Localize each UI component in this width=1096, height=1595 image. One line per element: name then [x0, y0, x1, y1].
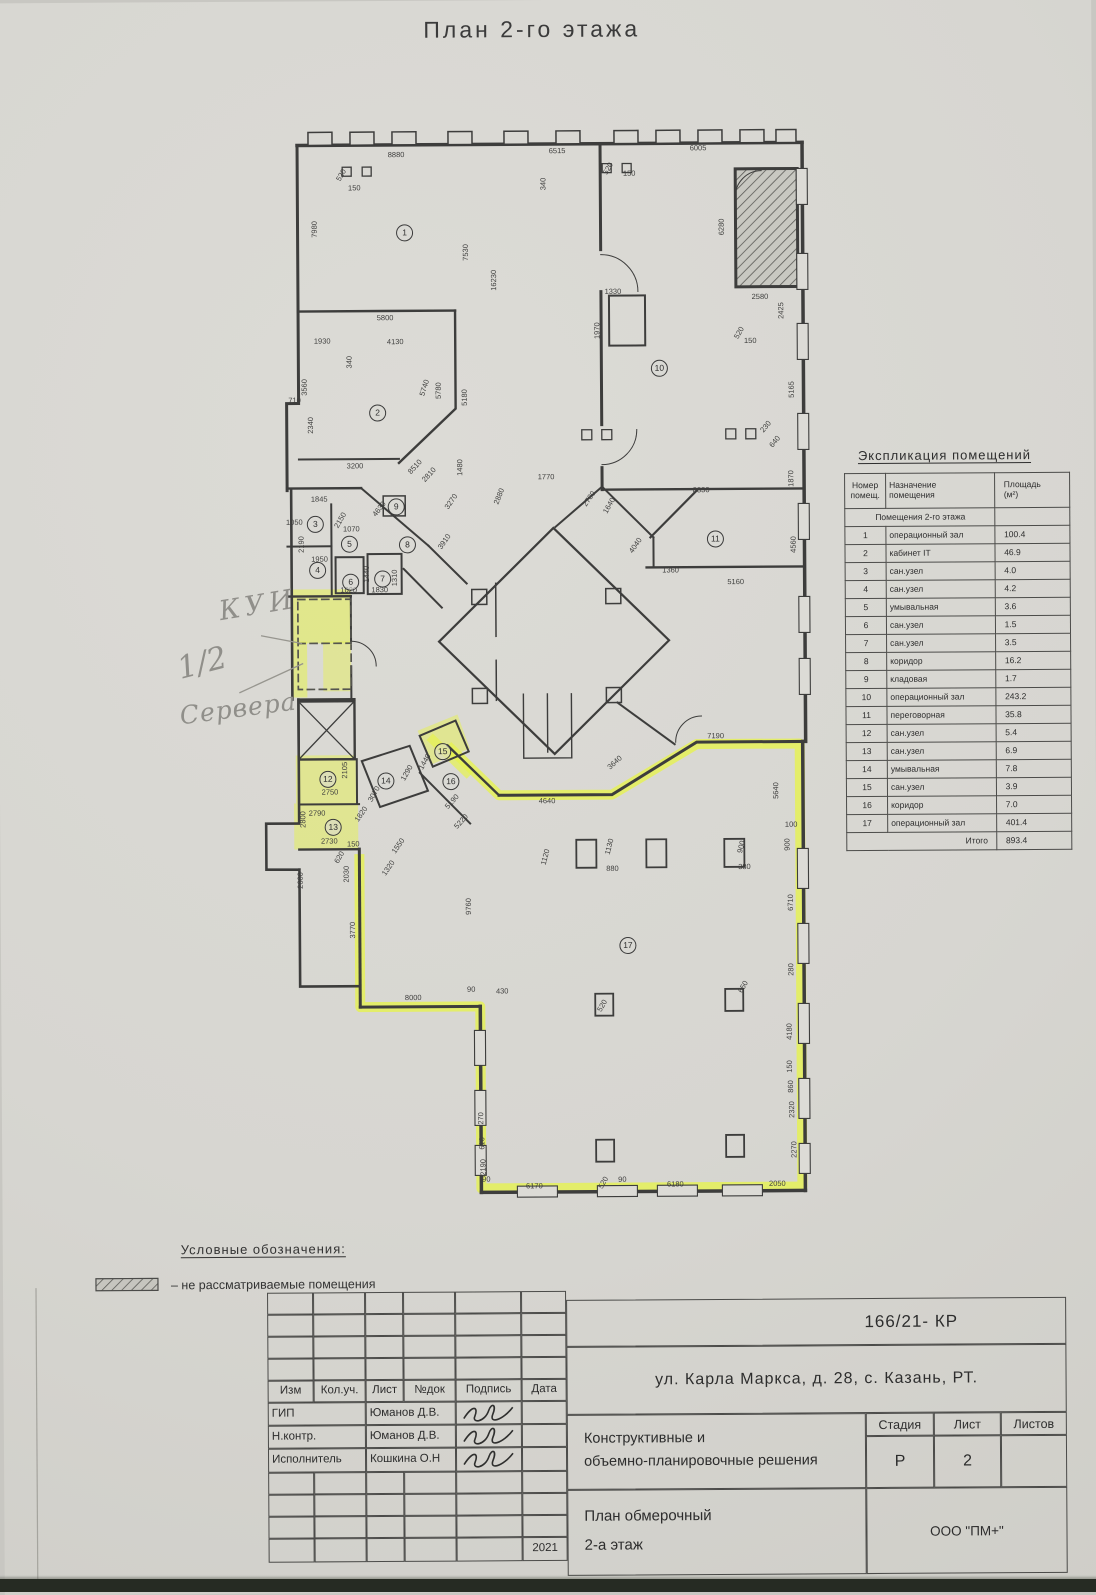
titleblock-empty-cell [367, 1538, 405, 1562]
room-number-marker: 5 [341, 536, 358, 553]
room-number-marker: 13 [325, 819, 342, 836]
room-number-marker: 7 [374, 570, 391, 587]
titleblock-empty-cell [455, 1335, 521, 1357]
dimension-label: 90 [467, 986, 475, 994]
table-row: 16коридор7.0 [847, 795, 1072, 814]
titleblock-empty-cell [268, 1494, 314, 1516]
dimension-label: 2425 [777, 302, 785, 319]
titleblock-empty-cell [521, 1335, 566, 1357]
table-row: 11переговорная35.8 [846, 705, 1071, 724]
titleblock-empty-cell [267, 1336, 313, 1358]
table-row: 1операционный зал100.4 [845, 525, 1070, 544]
room-number-marker: 11 [707, 530, 724, 547]
titleblock-empty-cell [404, 1472, 456, 1494]
titleblock-empty-cell [522, 1471, 567, 1493]
total-value: 893.4 [996, 831, 1071, 849]
dimension-label: 9760 [465, 898, 473, 915]
titleblock-cell: Юманов Д.В. [366, 1402, 456, 1426]
titleblock-cell: Лист [366, 1380, 404, 1402]
dimension-label: 4130 [387, 338, 404, 346]
dimension-label: 6005 [690, 144, 707, 152]
dimension-label: 2790 [309, 810, 326, 818]
titleblock-empty-cell [403, 1314, 455, 1336]
dimension-label: 5160 [727, 578, 744, 586]
table-row: 14умывальная7.8 [846, 759, 1071, 778]
dimension-label: 5780 [435, 382, 443, 399]
dimension-label: 2320 [788, 1101, 796, 1118]
titleblock-empty-cell [313, 1336, 365, 1358]
titleblock-empty-cell [267, 1314, 313, 1336]
titleblock-cell: Кошкина О.Н [366, 1448, 456, 1473]
titleblock-empty-cell [365, 1314, 403, 1336]
table-row: 7сан.узел3.5 [846, 633, 1071, 652]
titleblock-left-grid: ИзмКол.уч.Лист№докПодписьДатаГИПЮманов Д… [267, 1291, 569, 1564]
drawing-name: План обмерочный 2-а этаж [567, 1488, 867, 1576]
dimension-label: 7190 [707, 732, 724, 740]
titleblock-empty-cell [521, 1357, 566, 1379]
titleblock-empty-cell [268, 1516, 314, 1538]
dimension-label: 150 [786, 1060, 794, 1073]
titleblock-empty-cell [365, 1358, 403, 1380]
titleblock-cell: ГИП [268, 1402, 366, 1426]
titleblock-empty-cell [522, 1424, 567, 1447]
dimension-label: 4640 [539, 797, 556, 805]
dimension-label: 3560 [301, 379, 309, 396]
table-row: 15сан.узел3.9 [846, 777, 1071, 796]
titleblock-empty-cell [403, 1292, 455, 1314]
room-number-marker: 10 [651, 360, 668, 377]
company-name: ООО "ПМ+" [866, 1487, 1068, 1574]
dimension-label: 2050 [769, 1180, 786, 1188]
room-number-marker: 14 [377, 772, 394, 789]
dimension-label: 2580 [752, 293, 769, 301]
table-row: 8коридор16.2 [846, 651, 1071, 670]
titleblock-empty-cell [267, 1358, 313, 1380]
explication-body: Помещения 2-го этажа 1операционный зал10… [845, 507, 1072, 832]
titleblock-empty-cell [365, 1336, 403, 1358]
room-number-marker: 9 [388, 498, 405, 515]
signature-squiggle [460, 1426, 518, 1446]
dimension-label: 2105 [341, 762, 349, 779]
dimension-label: 340 [346, 356, 354, 369]
window-openings [469, 168, 813, 1197]
dimension-label: 2190 [479, 1159, 487, 1176]
dimension-label: 6180 [667, 1180, 684, 1188]
titleblock-cell: Исполнитель [268, 1448, 366, 1473]
dimension-label: 5180 [461, 389, 469, 406]
dimension-label: 8880 [388, 151, 405, 159]
dimension-label: 5640 [772, 782, 780, 799]
table-row: 17операционный зал401.4 [847, 813, 1072, 832]
dimension-label: 8000 [405, 994, 422, 1002]
titleblock-empty-cell [313, 1292, 365, 1314]
dimension-label: 4560 [790, 536, 798, 553]
dimension-label: 6170 [526, 1182, 543, 1190]
dimension-label: 3770 [349, 922, 357, 939]
titleblock-cell: Кол.уч. [314, 1380, 366, 1402]
dimension-label: 150 [744, 337, 757, 345]
dimension-label: 7530 [462, 244, 470, 261]
project-address: ул. Карла Маркса, д. 28, с. Казань, РТ. [566, 1344, 1066, 1415]
dimension-label: 2030 [343, 866, 351, 883]
dimension-label: 2270 [790, 1141, 798, 1158]
dimension-label: 2730 [321, 838, 338, 846]
dimension-label: 900 [784, 838, 792, 851]
titleblock-empty-cell [403, 1358, 455, 1380]
titleblock-empty-cell [314, 1472, 366, 1494]
titleblock-empty-cell [522, 1401, 567, 1424]
titleblock-empty-cell [455, 1313, 521, 1335]
room-number-marker: 3 [307, 516, 324, 533]
table-row: 6сан.узел1.5 [845, 615, 1070, 634]
titleblock-empty-cell [313, 1358, 365, 1380]
dimension-label: 1070 [343, 525, 360, 533]
table-row: 12сан.узел5.4 [846, 723, 1071, 742]
table-row: 5умывальная3.6 [845, 597, 1070, 616]
table-row: 13сан.узел6.9 [846, 741, 1071, 760]
dimension-label: 6515 [549, 147, 566, 155]
room-number-marker: 6 [342, 574, 359, 591]
dimension-label: 2340 [307, 417, 315, 434]
dimension-label: 880 [606, 865, 619, 873]
titleblock-empty-cell [404, 1494, 456, 1516]
titleblock-empty-cell [456, 1447, 522, 1471]
dimension-label: 1770 [538, 473, 555, 481]
titleblock-cell: Юманов Д.В. [366, 1425, 456, 1449]
titleblock-empty-cell [521, 1313, 566, 1335]
dimension-label: 1970 [593, 322, 601, 339]
titleblock-empty-cell [365, 1292, 403, 1314]
stage-label: Стадия [866, 1413, 934, 1436]
dimension-label: 5165 [788, 381, 796, 398]
sheet-frame-line [36, 1288, 38, 1581]
section-title: Конструктивные и объемно-планировочные р… [567, 1413, 866, 1490]
signature-squiggle [460, 1449, 518, 1469]
table-row: 4сан.узел4.2 [845, 579, 1070, 598]
dimension-label: 1845 [311, 496, 328, 504]
titleblock-cell: 2021 [523, 1537, 568, 1561]
legend-heading: Условные обозначения: [181, 1241, 346, 1257]
total-label: Итого [847, 832, 997, 851]
dimension-label: 1310 [391, 570, 399, 587]
dimension-label: 340 [539, 178, 547, 191]
scan-edge-band [0, 1579, 1096, 1592]
dimension-label: 5800 [377, 314, 394, 322]
dimension-label: 710 [288, 397, 301, 405]
titleblock-empty-cell [314, 1516, 366, 1538]
dimension-label: 2600 [297, 872, 305, 889]
stage-value: Р [866, 1436, 934, 1488]
room-number-marker: 2 [369, 404, 386, 421]
dimension-label: 150 [348, 184, 361, 192]
dimension-label: 610 [478, 1137, 486, 1150]
explication-panel: Экспликация помещений Номерпомещ. Назнач… [844, 447, 1072, 851]
explication-table: Номерпомещ. Назначениепомещения Площадь(… [844, 472, 1072, 851]
scanned-sheet: План 2-го этажа [0, 0, 1096, 1595]
document-code: 166/21- КР [566, 1297, 1066, 1347]
dimension-label: 100 [785, 821, 798, 829]
dimension-label: 270 [477, 1112, 485, 1125]
table-row: 9кладовая1.7 [846, 669, 1071, 688]
titleblock-empty-cell [268, 1472, 314, 1494]
dimension-label: 2800 [299, 811, 307, 828]
table-row: 2кабинет IT46.9 [845, 543, 1070, 562]
highlighter-marks [293, 586, 803, 1189]
dimension-label: 1480 [456, 459, 464, 476]
titleblock-empty-cell [522, 1447, 567, 1471]
titleblock-empty-cell [456, 1515, 522, 1537]
titleblock-cell: Н.контр. [268, 1425, 366, 1449]
table-row: 10операционный зал243.2 [846, 687, 1071, 706]
room-number-marker: 4 [309, 562, 326, 579]
titleblock-empty-cell [366, 1516, 404, 1538]
dimension-label: 150 [623, 170, 636, 178]
dimension-label: 2190 [298, 536, 306, 553]
titleblock-empty-cell [315, 1538, 367, 1562]
dimension-label: 1330 [605, 288, 622, 296]
group-row: Помещения 2-го этажа [845, 507, 1070, 526]
signature-squiggle [460, 1403, 518, 1423]
dimension-label: 1930 [314, 338, 331, 346]
room-number-marker: 8 [399, 536, 416, 553]
titleblock-cell: Дата [522, 1379, 567, 1401]
dimension-label: 4180 [786, 1023, 794, 1040]
legend-item: – не рассматриваемые помещения [171, 1277, 376, 1292]
dimension-label: 6280 [718, 219, 726, 236]
room-number-marker: 16 [442, 773, 459, 790]
col-header-purpose: Назначениепомещения [886, 473, 995, 509]
total-row: Итого 893.4 [847, 831, 1072, 850]
sheets-label: Листов [1001, 1412, 1067, 1435]
titleblock-empty-cell [522, 1493, 567, 1515]
dimension-label: 90 [482, 1176, 490, 1184]
titleblock-empty-cell [455, 1357, 521, 1379]
sheet-value: 2 [934, 1435, 1001, 1487]
titleblock-empty-cell [366, 1494, 404, 1516]
titleblock-empty-cell [403, 1336, 455, 1358]
titleblock-empty-cell [404, 1516, 456, 1538]
titleblock-empty-cell [456, 1424, 522, 1447]
dimension-label: 1360 [662, 566, 679, 574]
titleblock-empty-cell [455, 1291, 521, 1313]
titleblock-empty-cell [314, 1494, 366, 1516]
titleblock-empty-cell [269, 1538, 315, 1562]
col-header-number: Номерпомещ. [845, 473, 886, 508]
titleblock-empty-cell [456, 1471, 522, 1493]
sheets-value [1001, 1435, 1067, 1487]
legend-hatch-symbol [96, 1278, 158, 1290]
dimension-label: 1440 [363, 566, 371, 583]
titleblock-empty-cell [457, 1537, 523, 1561]
titleblock-empty-cell [267, 1292, 313, 1314]
dimension-label: 90 [618, 1176, 626, 1184]
titleblock-empty-cell [456, 1493, 522, 1515]
room-number-marker: 15 [434, 743, 451, 760]
dimension-label: 150 [347, 840, 360, 848]
dimension-label: 16230 [490, 270, 498, 291]
room-number-marker: 17 [619, 937, 636, 954]
dimension-label: 860 [787, 1080, 795, 1093]
titleblock-empty-cell [405, 1538, 457, 1562]
dimension-label: 430 [496, 987, 509, 995]
dimension-label: 380 [738, 863, 751, 871]
titleblock-empty-cell [522, 1515, 567, 1537]
titleblock-cell: Подпись [456, 1379, 522, 1401]
dimension-label: 280 [787, 963, 795, 976]
titleblock-cell: №док [404, 1380, 456, 1402]
dimension-label: 1870 [787, 470, 795, 487]
explication-title: Экспликация помещений [858, 447, 1070, 463]
table-row: 3сан.узел4.0 [845, 561, 1070, 580]
titleblock-empty-cell [456, 1401, 522, 1424]
titleblock-cell: Изм [268, 1380, 314, 1402]
dimension-label: 1050 [286, 519, 303, 527]
titleblock-empty-cell [313, 1314, 365, 1336]
room-number-marker: 12 [319, 771, 336, 788]
dimension-label: 1830 [371, 586, 388, 594]
dimension-label: 7980 [311, 221, 319, 238]
col-header-area: Площадь(м²) [994, 472, 1070, 507]
dimension-label: 3200 [347, 462, 364, 470]
titleblock-empty-cell [521, 1291, 566, 1313]
dimension-label: 6710 [787, 894, 795, 911]
sheet-label: Лист [934, 1412, 1001, 1435]
dimension-label: 8330 [693, 486, 710, 494]
dimension-label: 2750 [322, 789, 339, 797]
titleblock-empty-cell [366, 1472, 404, 1494]
room-number-marker: 1 [396, 224, 413, 241]
group-label: Помещения 2-го этажа [845, 508, 995, 527]
